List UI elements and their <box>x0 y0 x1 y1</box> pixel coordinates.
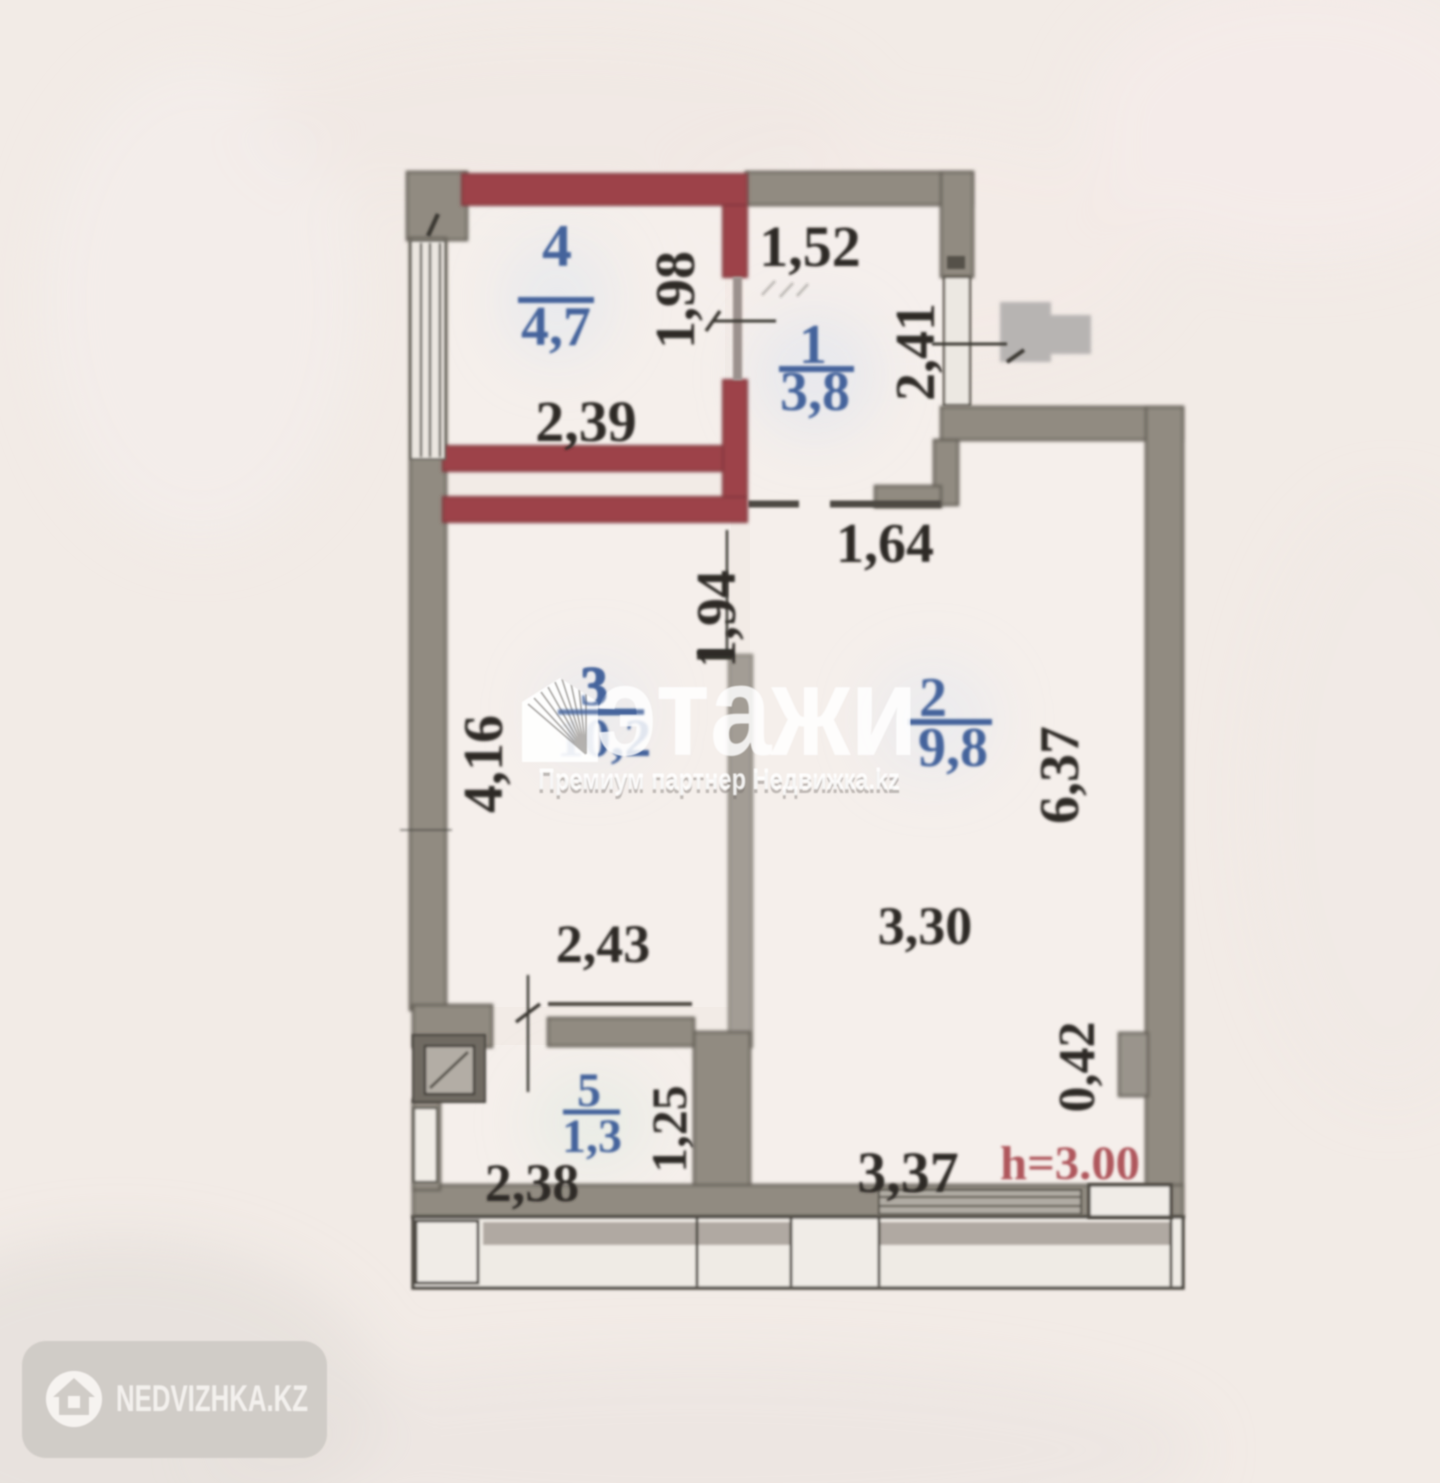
svg-text:1,98: 1,98 <box>645 251 707 349</box>
svg-text:0,42: 0,42 <box>1049 1022 1106 1113</box>
svg-text:1,25: 1,25 <box>641 1085 697 1173</box>
svg-text:3: 3 <box>580 656 608 718</box>
svg-text:h=3.00: h=3.00 <box>1000 1137 1140 1190</box>
svg-text:4,7: 4,7 <box>521 296 591 358</box>
svg-text:4: 4 <box>542 213 572 279</box>
svg-text:4,16: 4,16 <box>453 715 515 813</box>
svg-text:6,37: 6,37 <box>1029 726 1091 824</box>
svg-text:3,8: 3,8 <box>780 361 850 423</box>
svg-text:Премиум партнер Недвижка.kz: Премиум партнер Недвижка.kz <box>538 763 900 796</box>
svg-text:3,37: 3,37 <box>857 1140 959 1205</box>
svg-text:3,30: 3,30 <box>878 896 973 956</box>
svg-text:1,3: 1,3 <box>562 1110 622 1163</box>
svg-text:2,43: 2,43 <box>556 914 651 974</box>
svg-text:1,52: 1,52 <box>759 214 861 279</box>
svg-text:2,41: 2,41 <box>885 303 947 401</box>
svg-text:2,39: 2,39 <box>535 389 637 454</box>
svg-text:этажи: этажи <box>596 640 918 783</box>
svg-text:9,8: 9,8 <box>918 717 988 779</box>
svg-text:NEDVIZHKA.KZ: NEDVIZHKA.KZ <box>116 1378 308 1419</box>
svg-text:1,64: 1,64 <box>836 513 934 575</box>
